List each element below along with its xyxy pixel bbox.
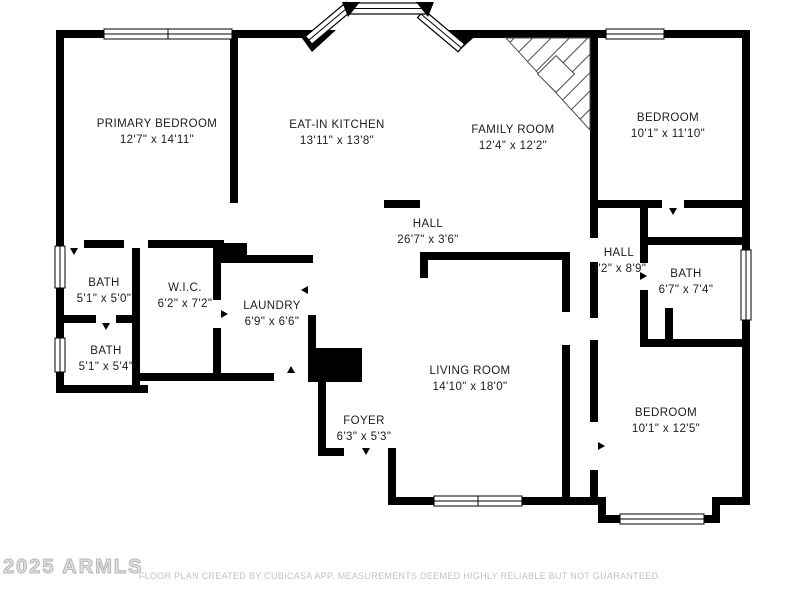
room-name: FAMILY ROOM: [471, 122, 554, 138]
room-name: BATH: [659, 266, 714, 282]
room-label-eat-in-kitchen: EAT-IN KITCHEN 13'11" x 13'8": [289, 117, 384, 149]
disclaimer-text: FLOOR PLAN CREATED BY CUBICASA APP. MEAS…: [0, 571, 800, 581]
room-name: HALL: [397, 216, 458, 232]
room-name: LAUNDRY: [243, 298, 301, 314]
room-name: W.I.C.: [158, 280, 213, 296]
room-dims: 5'1" x 5'4": [79, 359, 134, 375]
room-dims: 10'1" x 12'5": [632, 421, 700, 437]
bay-window: [296, 2, 482, 52]
room-label-living-room: LIVING ROOM 14'10" x 18'0": [429, 363, 510, 395]
room-dims: 6'2" x 7'2": [158, 296, 213, 312]
room-name: BATH: [77, 275, 132, 291]
room-dims: 6'9" x 6'6": [243, 314, 301, 330]
room-name: HALL: [592, 245, 647, 261]
room-label-bath-upper-left: BATH 5'1" x 5'0": [77, 275, 132, 307]
room-name: EAT-IN KITCHEN: [289, 117, 384, 133]
room-label-hall-main: HALL 26'7" x 3'6": [397, 216, 458, 248]
room-name: FOYER: [337, 413, 392, 429]
room-dims: 5'1" x 5'0": [77, 291, 132, 307]
room-dims: 3'2" x 8'9": [592, 261, 647, 277]
room-name: BEDROOM: [631, 110, 705, 126]
room-label-foyer: FOYER 6'3" x 5'3": [337, 413, 392, 445]
room-dims: 13'11" x 13'8": [289, 133, 384, 149]
room-dims: 26'7" x 3'6": [397, 232, 458, 248]
room-name: PRIMARY BEDROOM: [97, 116, 218, 132]
room-label-bath-lower-left: BATH 5'1" x 5'4": [79, 343, 134, 375]
room-dims: 14'10" x 18'0": [429, 379, 510, 395]
room-dims: 6'7" x 7'4": [659, 282, 714, 298]
room-label-bedroom-bottom-right: BEDROOM 10'1" x 12'5": [632, 405, 700, 437]
room-name: LIVING ROOM: [429, 363, 510, 379]
room-label-family-room: FAMILY ROOM 12'4" x 12'2": [471, 122, 554, 154]
room-label-hall-right: HALL 3'2" x 8'9": [592, 245, 647, 277]
room-dims: 10'1" x 11'10": [631, 126, 705, 142]
room-dims: 6'3" x 5'3": [337, 429, 392, 445]
room-label-bath-right: BATH 6'7" x 7'4": [659, 266, 714, 298]
room-dims: 12'7" x 14'11": [97, 132, 218, 148]
corner-hatch: [506, 38, 590, 130]
room-label-primary-bedroom: PRIMARY BEDROOM 12'7" x 14'11": [97, 116, 218, 148]
room-label-bedroom-top-right: BEDROOM 10'1" x 11'10": [631, 110, 705, 142]
room-dims: 12'4" x 12'2": [471, 138, 554, 154]
floor-plan: PRIMARY BEDROOM 12'7" x 14'11" EAT-IN KI…: [0, 0, 800, 600]
room-label-laundry: LAUNDRY 6'9" x 6'6": [243, 298, 301, 330]
room-name: BEDROOM: [632, 405, 700, 421]
room-name: BATH: [79, 343, 134, 359]
room-label-wic: W.I.C. 6'2" x 7'2": [158, 280, 213, 312]
windows: [55, 29, 751, 524]
